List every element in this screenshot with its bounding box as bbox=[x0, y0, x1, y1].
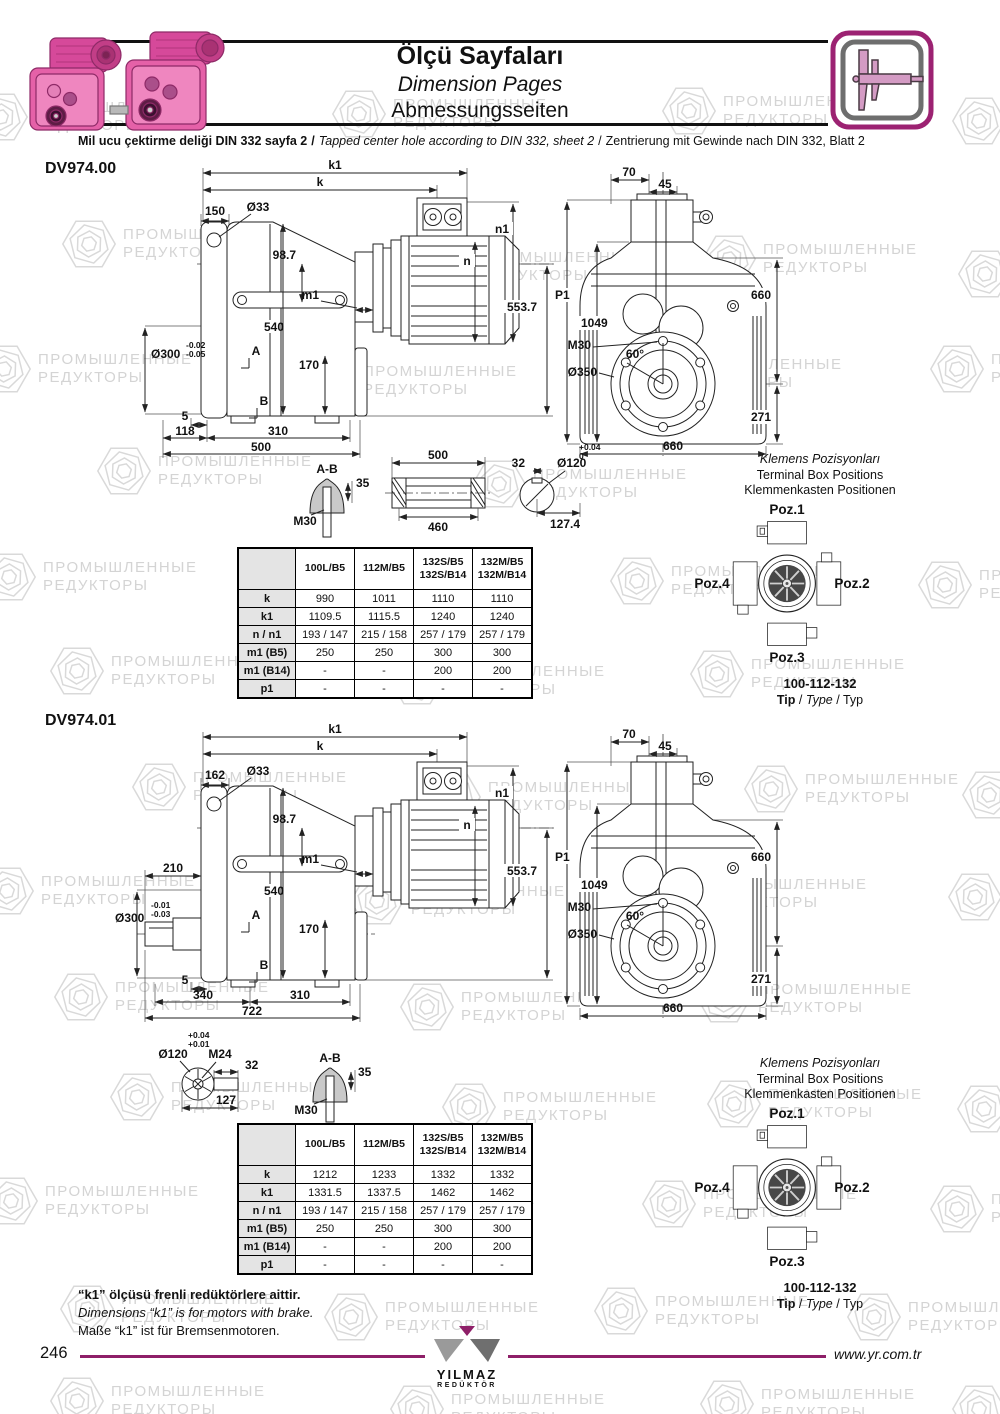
dim-label: 660 bbox=[751, 288, 771, 302]
watermark-text: ПРОМЫШЛЕННЫЕ РЕДУКТОРЫ bbox=[45, 1183, 199, 1219]
subtitle-turkish: Mil ucu çektirme deliği DIN 332 sayfa 2 bbox=[78, 134, 307, 148]
section-label: A-B bbox=[319, 1051, 341, 1065]
table-cell: 250 bbox=[355, 644, 414, 662]
table-corner-cell bbox=[238, 1124, 296, 1166]
row-label: p1 bbox=[238, 680, 296, 699]
watermark: ПРОМЫШЛЕННЫЕ РЕДУКТОРЫ bbox=[946, 868, 1000, 926]
hexagon-swirl-icon bbox=[0, 1172, 40, 1230]
watermark: ПРОМЫШЛЕННЫЕ РЕДУКТОРЫ bbox=[48, 1372, 265, 1414]
table-cell: 1240 bbox=[414, 608, 473, 626]
table-row: m1 (B5)250250300300 bbox=[238, 644, 532, 662]
table-corner-cell bbox=[238, 548, 296, 590]
hexagon-swirl-icon bbox=[0, 548, 38, 606]
dim-label: m1 bbox=[302, 852, 320, 866]
hexagon-swirl-icon bbox=[608, 552, 666, 610]
watermark: ПРОМЫШЛЕННЫЕ РЕДУКТОРЫ bbox=[0, 548, 197, 606]
model-code-dv974-00: DV974.00 bbox=[45, 160, 116, 178]
dim-label: 32 bbox=[512, 456, 526, 470]
section-mark: B bbox=[260, 394, 269, 408]
hexagon-swirl-icon bbox=[946, 868, 1000, 926]
yilmaz-logo-icon bbox=[432, 1326, 502, 1364]
dim-label: M30 bbox=[568, 338, 592, 352]
footnote-turkish: “k1” ölçüsü frenli redüktörlere aittir. bbox=[78, 1286, 314, 1304]
poz2-label: Poz.2 bbox=[820, 1180, 884, 1195]
dim-label: 1049 bbox=[581, 878, 608, 892]
page-number: 246 bbox=[40, 1344, 68, 1363]
watermark-text: ПРОМЫШЛЕННЫЕ РЕДУКТОРЫ bbox=[43, 559, 197, 595]
dim-label: M30 bbox=[568, 900, 592, 914]
hexagon-swirl-icon bbox=[60, 215, 118, 273]
title-german: Abmessungsseiten bbox=[280, 99, 680, 123]
subtitle-line: Mil ucu çektirme deliği DIN 332 sayfa 2/… bbox=[78, 134, 865, 148]
row-label: k bbox=[238, 1166, 296, 1184]
table-cell: - bbox=[296, 662, 355, 680]
table-cell: - bbox=[473, 1256, 533, 1275]
table-cell: - bbox=[414, 680, 473, 699]
table-cell: 1332 bbox=[414, 1166, 473, 1184]
column-header: 100L/B5 bbox=[296, 1124, 355, 1166]
dv974-01-shaft-details: Ø120 M24 32 127 A-B 35 M30 +0.04 +0.01 bbox=[150, 1032, 480, 1124]
table-cell: - bbox=[355, 680, 414, 699]
dim-label: k bbox=[317, 175, 324, 189]
row-label: m1 (B5) bbox=[238, 1220, 296, 1238]
table-cell: 257 / 179 bbox=[473, 626, 533, 644]
dim-label: 540 bbox=[264, 320, 284, 334]
terminal-box-positions-block: Klemens Pozisyonları Terminal Box Positi… bbox=[660, 452, 980, 722]
terminal-caption-english: Terminal Box Positions bbox=[660, 1072, 980, 1088]
table-cell: 200 bbox=[414, 1238, 473, 1256]
row-label: m1 (B5) bbox=[238, 644, 296, 662]
table-cell: - bbox=[355, 662, 414, 680]
table-row: k1212123313321332 bbox=[238, 1166, 532, 1184]
table-cell: 300 bbox=[414, 1220, 473, 1238]
poz2-label: Poz.2 bbox=[820, 576, 884, 591]
size-range-label: 100-112-132 bbox=[660, 1280, 980, 1295]
dim-label: k1 bbox=[328, 158, 342, 172]
table-cell: 1115.5 bbox=[355, 608, 414, 626]
terminal-caption-german: Klemmenkasten Positionen bbox=[660, 483, 980, 499]
table-cell: - bbox=[355, 1256, 414, 1275]
footnotes: “k1” ölçüsü frenli redüktörlere aittir. … bbox=[78, 1286, 314, 1340]
dim-label: 553.7 bbox=[507, 300, 537, 314]
hexagon-swirl-icon bbox=[960, 766, 1000, 824]
watermark-text: ПРОМЫШЛЕННЫЕ РЕДУКТОРЫ bbox=[991, 351, 1000, 387]
logo-text-yilmaz: YILMAZ bbox=[428, 1367, 506, 1382]
dim-label: 45 bbox=[658, 739, 672, 753]
hexagon-swirl-icon bbox=[950, 92, 1000, 150]
table-cell: - bbox=[414, 1256, 473, 1275]
hexagon-swirl-icon bbox=[322, 1288, 380, 1346]
dim-label: 210 bbox=[163, 861, 183, 875]
dim-label: n bbox=[463, 818, 470, 832]
poz3-label: Poz.3 bbox=[757, 1254, 817, 1269]
watermark: ПРОМЫШЛЕННЫЕ РЕДУКТОРЫ bbox=[0, 1172, 199, 1230]
table-row: m1 (B5)250250300300 bbox=[238, 1220, 532, 1238]
table-cell: - bbox=[355, 1238, 414, 1256]
motor-outline bbox=[355, 198, 519, 344]
terminal-caption-turkish: Klemens Pozisyonları bbox=[660, 1056, 980, 1072]
row-label: n / n1 bbox=[238, 626, 296, 644]
terminal-caption-german: Klemmenkasten Positionen bbox=[660, 1087, 980, 1103]
terminal-box-positions-block: Klemens Pozisyonları Terminal Box Positi… bbox=[660, 1056, 980, 1326]
table-cell: 300 bbox=[473, 1220, 533, 1238]
dim-label: n1 bbox=[495, 786, 509, 800]
table-cell: 250 bbox=[296, 1220, 355, 1238]
footer-rule-right bbox=[508, 1355, 826, 1358]
terminal-caption-english: Terminal Box Positions bbox=[660, 468, 980, 484]
dim-label: M30 bbox=[293, 514, 317, 528]
row-label: k bbox=[238, 590, 296, 608]
table-cell: 250 bbox=[355, 1220, 414, 1238]
footnote-german: Maße “k1” ist für Bremsenmotoren. bbox=[78, 1322, 314, 1340]
dim-label: 722 bbox=[242, 1004, 262, 1018]
dim-label: 540 bbox=[264, 884, 284, 898]
watermark: ПРОМЫШЛЕННЫЕ РЕДУКТОРЫ bbox=[698, 1375, 915, 1414]
table-cell: 1110 bbox=[473, 590, 533, 608]
column-header: 112M/B5 bbox=[355, 1124, 414, 1166]
dim-label: P1 bbox=[555, 850, 570, 864]
table-cell: - bbox=[296, 680, 355, 699]
subtitle-english: Tapped center hole according to DIN 332,… bbox=[319, 134, 594, 148]
dv974-00-front-view-drawing: 70 45 P1 1049 660 60° M30 Ø350 271 660 bbox=[553, 166, 793, 464]
column-header: 132S/B5132S/B14 bbox=[414, 1124, 473, 1166]
title-turkish: Ölçü Sayfaları bbox=[280, 42, 680, 71]
poz4-label: Poz.4 bbox=[680, 1180, 744, 1195]
table-cell: 300 bbox=[473, 644, 533, 662]
watermark: ПРОМЫШЛЕННЫЕ РЕДУКТОРЫ bbox=[48, 642, 265, 700]
table-row: p1---- bbox=[238, 680, 532, 699]
dim-label: 118 bbox=[175, 424, 195, 438]
table-row: m1 (B14)--200200 bbox=[238, 662, 532, 680]
dim-label: 35 bbox=[356, 476, 370, 490]
model-code-dv974-01: DV974.01 bbox=[45, 712, 116, 730]
table-cell: 215 / 158 bbox=[355, 1202, 414, 1220]
footer-rule-left bbox=[80, 1355, 425, 1358]
caliper-icon bbox=[830, 30, 934, 130]
dim-label: k bbox=[317, 739, 324, 753]
page-title: Ölçü Sayfaları Dimension Pages Abmessung… bbox=[280, 42, 680, 123]
hexagon-swirl-icon bbox=[48, 1372, 106, 1414]
dim-label: 35 bbox=[358, 1065, 372, 1079]
poz1-label: Poz.1 bbox=[757, 502, 817, 517]
table-row: p1---- bbox=[238, 1256, 532, 1275]
poz3-label: Poz.3 bbox=[757, 650, 817, 665]
dim-label: 660 bbox=[663, 439, 683, 453]
separator: / bbox=[598, 134, 601, 148]
dim-label: 32 bbox=[245, 1058, 259, 1072]
dim-label: 271 bbox=[751, 972, 771, 986]
dim-label: M30 bbox=[294, 1103, 318, 1117]
dim-label: 500 bbox=[428, 448, 448, 462]
terminal-caption-turkish: Klemens Pozisyonları bbox=[660, 452, 980, 468]
column-header: 112M/B5 bbox=[355, 548, 414, 590]
dv974-01-side-view-drawing: k1 k 162 Ø33 210 n1 n 553.7 98.7 m1 540 … bbox=[115, 722, 585, 1024]
dim-label: Ø350 bbox=[568, 365, 598, 379]
table-cell: 1462 bbox=[414, 1184, 473, 1202]
yilmaz-reduktor-logo: YILMAZ REDÜKTÖR bbox=[428, 1326, 506, 1389]
table-cell: - bbox=[473, 680, 533, 699]
subtitle-german: Zentrierung mit Gewinde nach DIN 332, Bl… bbox=[606, 134, 865, 148]
dim-label: 70 bbox=[622, 727, 636, 741]
dim-label: 170 bbox=[299, 922, 319, 936]
hexagon-swirl-icon bbox=[956, 245, 1000, 303]
type-label: Tip / Type / Typ bbox=[660, 1297, 980, 1311]
watermark: ПРОМЫШЛЕННЫЕ РЕДУКТОРЫ bbox=[950, 1380, 1000, 1414]
table-row: k11331.51337.514621462 bbox=[238, 1184, 532, 1202]
hexagon-swirl-icon bbox=[52, 968, 110, 1026]
table-cell: 257 / 179 bbox=[414, 1202, 473, 1220]
column-header: 132M/B5132M/B14 bbox=[473, 1124, 533, 1166]
dim-label: P1 bbox=[555, 288, 570, 302]
title-english: Dimension Pages bbox=[280, 73, 680, 97]
dim-label: M24 bbox=[208, 1047, 232, 1061]
row-label: k1 bbox=[238, 608, 296, 626]
row-label: m1 (B14) bbox=[238, 662, 296, 680]
table-cell: 193 / 147 bbox=[296, 1202, 355, 1220]
dim-label: 60° bbox=[626, 909, 644, 923]
dim-label: 45 bbox=[658, 177, 672, 191]
table-cell: 990 bbox=[296, 590, 355, 608]
dim-label: 60° bbox=[626, 347, 644, 361]
table-cell: 1331.5 bbox=[296, 1184, 355, 1202]
dv974-00-shaft-details: A-B 35 M30 500 460 32 Ø120 127.4 +0.04 0 bbox=[235, 443, 620, 545]
dim-label: 150 bbox=[205, 204, 225, 218]
dim-label: 170 bbox=[299, 358, 319, 372]
dim-label: m1 bbox=[302, 288, 320, 302]
row-label: n / n1 bbox=[238, 1202, 296, 1220]
dim-label: 127.4 bbox=[550, 517, 580, 531]
dim-label: 553.7 bbox=[507, 864, 537, 878]
table-cell: 300 bbox=[414, 644, 473, 662]
table-row: k11109.51115.512401240 bbox=[238, 608, 532, 626]
watermark-text: ПРОМЫШЛЕННЫЕ РЕДУКТОРЫ bbox=[111, 1383, 265, 1414]
table-cell: 1109.5 bbox=[296, 608, 355, 626]
watermark: ПРОМЫШЛЕННЫЕ РЕДУКТОРЫ bbox=[950, 92, 1000, 150]
table-cell: 257 / 179 bbox=[414, 626, 473, 644]
dim-label: n1 bbox=[495, 222, 509, 236]
watermark: ПРОМЫШЛЕННЫЕ РЕДУКТОРЫ bbox=[960, 766, 1000, 824]
dim-label: Ø120 bbox=[158, 1047, 188, 1061]
dim-label: n bbox=[463, 254, 470, 268]
table-cell: 1011 bbox=[355, 590, 414, 608]
tolerance-label: +0.01 bbox=[188, 1039, 210, 1049]
dv974-01-front-view-drawing: 70 45 P1 1049 660 60° M30 Ø350 271 660 bbox=[553, 728, 793, 1026]
watermark-text: ПРОМЫШЛЕННЫЕ РЕДУКТОРЫ bbox=[979, 567, 1000, 603]
poz1-label: Poz.1 bbox=[757, 1106, 817, 1121]
watermark: ПРОМЫШЛЕННЫЕ РЕДУКТОРЫ bbox=[956, 245, 1000, 303]
dim-label: 340 bbox=[193, 988, 213, 1002]
dim-label: 310 bbox=[290, 988, 310, 1002]
section-mark: A bbox=[252, 344, 261, 358]
dim-label: 70 bbox=[622, 165, 636, 179]
table-cell: 1110 bbox=[414, 590, 473, 608]
table-cell: 1212 bbox=[296, 1166, 355, 1184]
logo-text-reduktor: REDÜKTÖR bbox=[428, 1382, 506, 1389]
dimension-table-dv974-00: 100L/B5112M/B5132S/B5132S/B14132M/B5132M… bbox=[237, 547, 533, 699]
table-cell: 1240 bbox=[473, 608, 533, 626]
footnote-english: Dimensions “k1” is for motors with brake… bbox=[78, 1304, 314, 1322]
table-cell: - bbox=[296, 1256, 355, 1275]
size-range-label: 100-112-132 bbox=[660, 676, 980, 691]
dimension-table-dv974-01: 100L/B5112M/B5132S/B5132S/B14132M/B5132M… bbox=[237, 1123, 533, 1275]
dim-label: 5 bbox=[182, 409, 189, 423]
table-cell: 1233 bbox=[355, 1166, 414, 1184]
dim-label: 660 bbox=[663, 1001, 683, 1015]
watermark: ПРОМЫШЛЕННЫЕ РЕДУКТОРЫ bbox=[928, 340, 1000, 398]
table-row: m1 (B14)--200200 bbox=[238, 1238, 532, 1256]
column-header: 100L/B5 bbox=[296, 548, 355, 590]
dimension-table: 100L/B5112M/B5132S/B5132S/B14132M/B5132M… bbox=[237, 547, 533, 699]
catalog-page: ПРОМЫШЛЕННЫЕ РЕДУКТОРЫ ПРОМЫШЛЕННЫЕ РЕДУ… bbox=[0, 0, 1000, 1414]
table-cell: 200 bbox=[414, 662, 473, 680]
dim-label: Ø300 bbox=[151, 347, 181, 361]
dim-label: 5 bbox=[182, 973, 189, 987]
table-cell: 257 / 179 bbox=[473, 1202, 533, 1220]
section-label: A-B bbox=[316, 462, 338, 476]
dim-label: 98.7 bbox=[273, 812, 297, 826]
column-header: 132S/B5132S/B14 bbox=[414, 548, 473, 590]
hexagon-swirl-icon bbox=[698, 1375, 756, 1414]
dim-label: Ø300 bbox=[115, 911, 145, 925]
dim-label: Ø33 bbox=[247, 200, 270, 214]
row-label: k1 bbox=[238, 1184, 296, 1202]
table-cell: 250 bbox=[296, 644, 355, 662]
table-cell: 1332 bbox=[473, 1166, 533, 1184]
dim-label: 271 bbox=[751, 410, 771, 424]
table-cell: 1337.5 bbox=[355, 1184, 414, 1202]
poz4-label: Poz.4 bbox=[680, 576, 744, 591]
watermark-text: ПРОМЫШЛЕННЫЕ РЕДУКТОРЫ bbox=[451, 1391, 605, 1414]
table-cell: - bbox=[296, 1238, 355, 1256]
hexagon-swirl-icon bbox=[592, 1282, 650, 1340]
tolerance-label: -0.03 bbox=[151, 909, 171, 919]
dim-label: Ø33 bbox=[247, 764, 270, 778]
hexagon-swirl-icon bbox=[0, 340, 33, 398]
dim-label: 460 bbox=[428, 520, 448, 534]
hexagon-swirl-icon bbox=[928, 340, 986, 398]
dim-label: Ø350 bbox=[568, 927, 598, 941]
table-cell: 200 bbox=[473, 662, 533, 680]
dim-label: k1 bbox=[328, 722, 342, 736]
column-header: 132M/B5132M/B14 bbox=[473, 548, 533, 590]
dim-label: 98.7 bbox=[273, 248, 297, 262]
hexagon-swirl-icon bbox=[950, 1380, 1000, 1414]
website-url: www.yr.com.tr bbox=[834, 1346, 921, 1362]
table-row: n / n1193 / 147215 / 158257 / 179257 / 1… bbox=[238, 626, 532, 644]
watermark-text: ПРОМЫШЛЕННЫЕ РЕДУКТОРЫ bbox=[761, 1386, 915, 1414]
section-mark: A bbox=[252, 908, 261, 922]
row-label: p1 bbox=[238, 1256, 296, 1275]
table-cell: 200 bbox=[473, 1238, 533, 1256]
table-cell: 215 / 158 bbox=[355, 626, 414, 644]
hexagon-swirl-icon bbox=[0, 862, 36, 920]
section-mark: B bbox=[260, 958, 269, 972]
row-label: m1 (B14) bbox=[238, 1238, 296, 1256]
motor-outline bbox=[355, 762, 519, 908]
watermark-text: ПРОМЫШЛЕННЫЕ РЕДУКТОРЫ bbox=[503, 1089, 657, 1125]
type-label: Tip / Type / Typ bbox=[660, 693, 980, 707]
hexagon-swirl-icon bbox=[48, 642, 106, 700]
dim-label: 162 bbox=[205, 768, 225, 782]
dimension-table: 100L/B5112M/B5132S/B5132S/B14132M/B5132M… bbox=[237, 1123, 533, 1275]
dim-label: 127 bbox=[216, 1093, 236, 1107]
watermark-text: ПРОМЫШЛЕННЫЕ РЕДУКТОРЫ bbox=[991, 1191, 1000, 1227]
dv974-00-side-view-drawing: k1 k 150 Ø33 n1 n 553.7 98.7 m1 540 170 … bbox=[115, 158, 585, 460]
separator: / bbox=[311, 134, 314, 148]
dim-label: 1049 bbox=[581, 316, 608, 330]
tolerance-label: 0 bbox=[579, 451, 584, 461]
watermark-text: ПРОМЫШЛЕННЫЕ РЕДУКТОРЫ bbox=[805, 771, 959, 807]
dim-label: 660 bbox=[751, 850, 771, 864]
tolerance-label: -0.05 bbox=[186, 349, 206, 359]
table-cell: 193 / 147 bbox=[296, 626, 355, 644]
table-row: n / n1193 / 147215 / 158257 / 179257 / 1… bbox=[238, 1202, 532, 1220]
table-cell: 1462 bbox=[473, 1184, 533, 1202]
pink-gearmotors-image bbox=[22, 24, 237, 136]
table-row: k990101111101110 bbox=[238, 590, 532, 608]
dim-label: 310 bbox=[268, 424, 288, 438]
